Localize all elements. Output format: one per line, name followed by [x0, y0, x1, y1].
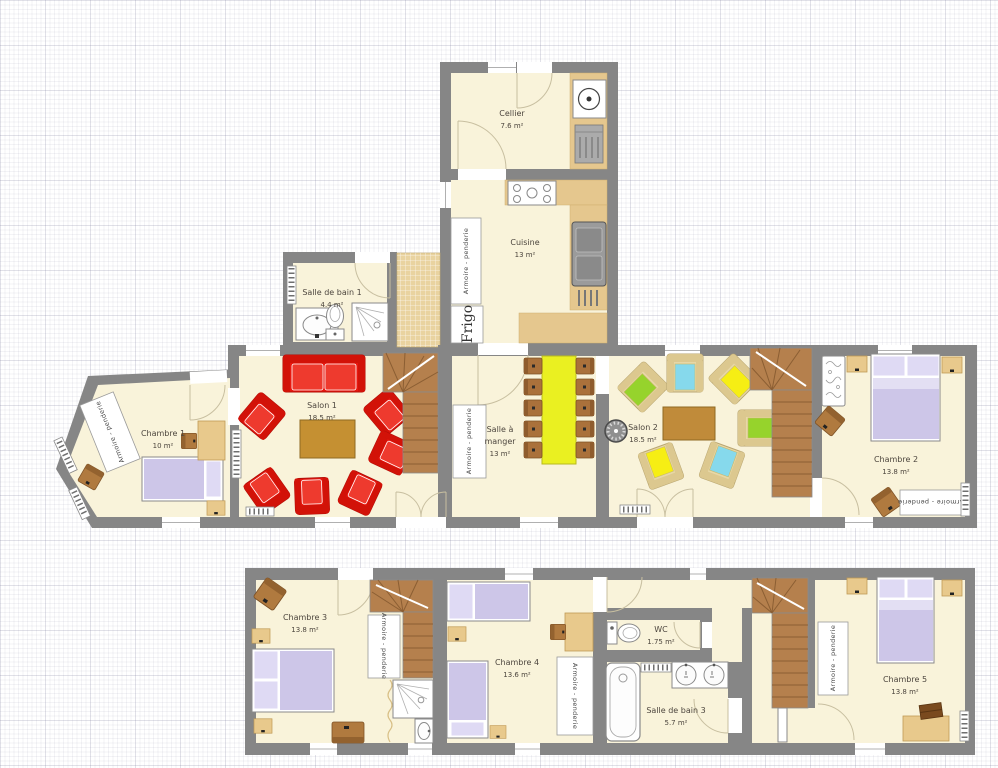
svg-text:10 m²: 10 m² [153, 442, 174, 450]
svg-text:Armoire - penderie: Armoire - penderie [571, 663, 579, 729]
radiator[interactable] [961, 483, 970, 516]
svg-text:13.8 m²: 13.8 m² [891, 688, 919, 696]
svg-text:13.8 m²: 13.8 m² [882, 468, 910, 476]
laptop[interactable] [919, 703, 943, 720]
sofa[interactable] [283, 355, 365, 392]
window [408, 743, 432, 755]
svg-text:Salon 1: Salon 1 [307, 401, 337, 410]
shower[interactable] [352, 303, 388, 341]
cooktop[interactable] [508, 181, 556, 205]
dining-chair[interactable] [524, 421, 542, 437]
wardrobe-ch5[interactable]: Armoire - penderie [818, 622, 848, 695]
coffee-table[interactable] [663, 407, 715, 440]
washing-machine[interactable] [573, 80, 606, 118]
dining-chair[interactable] [576, 400, 594, 416]
window [520, 517, 558, 528]
coffee-table[interactable] [300, 420, 355, 458]
nightstand[interactable] [448, 627, 466, 641]
svg-text:manger: manger [484, 437, 516, 446]
dining-table[interactable] [542, 356, 576, 464]
wardrobe-cuisine[interactable]: Armoire - penderie [451, 218, 481, 304]
svg-text:Chambre 4: Chambre 4 [495, 658, 539, 667]
svg-text:5.7 m²: 5.7 m² [665, 719, 688, 727]
svg-text:Frigo: Frigo [460, 305, 476, 343]
radiator[interactable] [232, 430, 241, 478]
bathtub[interactable] [606, 663, 640, 741]
bed-double[interactable] [877, 577, 934, 663]
toilet[interactable] [607, 622, 640, 644]
svg-text:Salle de bain 1: Salle de bain 1 [302, 288, 361, 297]
bed-single[interactable] [142, 457, 223, 501]
svg-text:Armoire - penderie: Armoire - penderie [829, 625, 837, 691]
window [505, 568, 533, 580]
radiator[interactable] [620, 505, 650, 514]
svg-text:Salle à: Salle à [487, 425, 514, 434]
dining-chair[interactable] [524, 400, 542, 416]
svg-text:Cellier: Cellier [499, 109, 525, 118]
svg-text:4.4 m²: 4.4 m² [321, 301, 344, 309]
wardrobe-ch3[interactable]: Armoire - penderie [368, 613, 400, 679]
shower[interactable] [393, 680, 433, 718]
nightstand[interactable] [207, 501, 225, 515]
window [690, 568, 706, 580]
window [162, 517, 200, 528]
dining-chair[interactable] [576, 379, 594, 395]
svg-text:13.8 m²: 13.8 m² [291, 626, 319, 634]
radiator[interactable] [960, 711, 969, 741]
svg-text:1.75 m²: 1.75 m² [647, 638, 675, 646]
armchair[interactable] [667, 354, 703, 392]
radiator[interactable] [246, 507, 274, 516]
window [315, 517, 350, 528]
dining-chair[interactable] [524, 379, 542, 395]
window [246, 345, 280, 356]
svg-text:13 m²: 13 m² [490, 450, 511, 458]
svg-text:Chambre 2: Chambre 2 [874, 455, 918, 464]
dining-chair[interactable] [576, 421, 594, 437]
svg-text:Armoire - penderie: Armoire - penderie [898, 498, 964, 506]
dining-chair[interactable] [576, 442, 594, 458]
fridge[interactable]: Frigo [451, 305, 483, 343]
window [440, 182, 451, 208]
window [515, 743, 540, 755]
svg-text:Chambre 5: Chambre 5 [883, 675, 927, 684]
svg-text:Armoire - penderie: Armoire - penderie [380, 613, 388, 679]
bed-double[interactable] [871, 354, 940, 441]
wardrobe-ch4[interactable]: Armoire - penderie [557, 657, 593, 735]
armchair[interactable] [294, 477, 329, 514]
svg-text:13 m²: 13 m² [515, 251, 536, 259]
window [310, 743, 337, 755]
nightstand[interactable] [942, 580, 962, 596]
window [488, 62, 516, 73]
floor-plan-canvas: Cellier 7.6 m² Armoire - penderie [0, 0, 998, 768]
nightstand[interactable] [252, 629, 270, 643]
svg-text:Armoire - penderie: Armoire - penderie [462, 228, 470, 294]
dining-chair[interactable] [524, 442, 542, 458]
bed-single[interactable] [447, 661, 488, 738]
wood-stove[interactable] [605, 420, 627, 442]
svg-text:18.5 m²: 18.5 m² [308, 414, 336, 422]
dining-chair[interactable] [524, 358, 542, 374]
shaft [397, 253, 440, 347]
nightstand[interactable] [847, 356, 867, 372]
double-sink-vanity[interactable] [672, 662, 728, 688]
armchair[interactable] [738, 410, 776, 446]
nightstand[interactable] [847, 578, 867, 594]
bed-double[interactable] [252, 649, 334, 712]
radiator[interactable] [641, 663, 671, 672]
desk[interactable] [565, 613, 593, 651]
door [228, 388, 240, 425]
nightstand[interactable] [942, 357, 962, 373]
desk-chair[interactable] [550, 624, 565, 639]
svg-text:7.6 m²: 7.6 m² [501, 122, 524, 130]
crib[interactable] [822, 356, 845, 406]
toilet[interactable] [326, 305, 344, 341]
stool[interactable] [332, 722, 364, 743]
radiator[interactable] [287, 266, 296, 304]
bathroom-sink[interactable] [415, 719, 433, 743]
bed-single[interactable] [447, 582, 530, 621]
svg-text:Chambre 3: Chambre 3 [283, 613, 327, 622]
svg-text:Armoire - penderie: Armoire - penderie [465, 408, 473, 474]
nightstand[interactable] [254, 719, 272, 733]
floor-plan: Cellier 7.6 m² Armoire - penderie [0, 0, 998, 768]
wardrobe-dining[interactable]: Armoire - penderie [453, 405, 486, 478]
svg-text:Salle de bain 3: Salle de bain 3 [646, 706, 705, 715]
wardrobe-ch2[interactable]: Armoire - penderie [898, 490, 964, 515]
appliance[interactable] [575, 125, 603, 163]
door [596, 356, 609, 394]
stool[interactable] [490, 726, 506, 739]
svg-text:Salon 2: Salon 2 [628, 423, 658, 432]
window [845, 517, 873, 528]
window [855, 743, 885, 755]
dining-chair[interactable] [576, 358, 594, 374]
svg-text:Chambre 1: Chambre 1 [141, 429, 185, 438]
desk[interactable] [903, 716, 949, 741]
svg-text:18.5 m²: 18.5 m² [629, 436, 657, 444]
desk[interactable] [198, 421, 225, 460]
svg-text:Cuisine: Cuisine [510, 238, 539, 247]
svg-text:WC: WC [654, 625, 668, 634]
svg-text:13.6 m²: 13.6 m² [503, 671, 531, 679]
counter[interactable] [519, 313, 607, 343]
